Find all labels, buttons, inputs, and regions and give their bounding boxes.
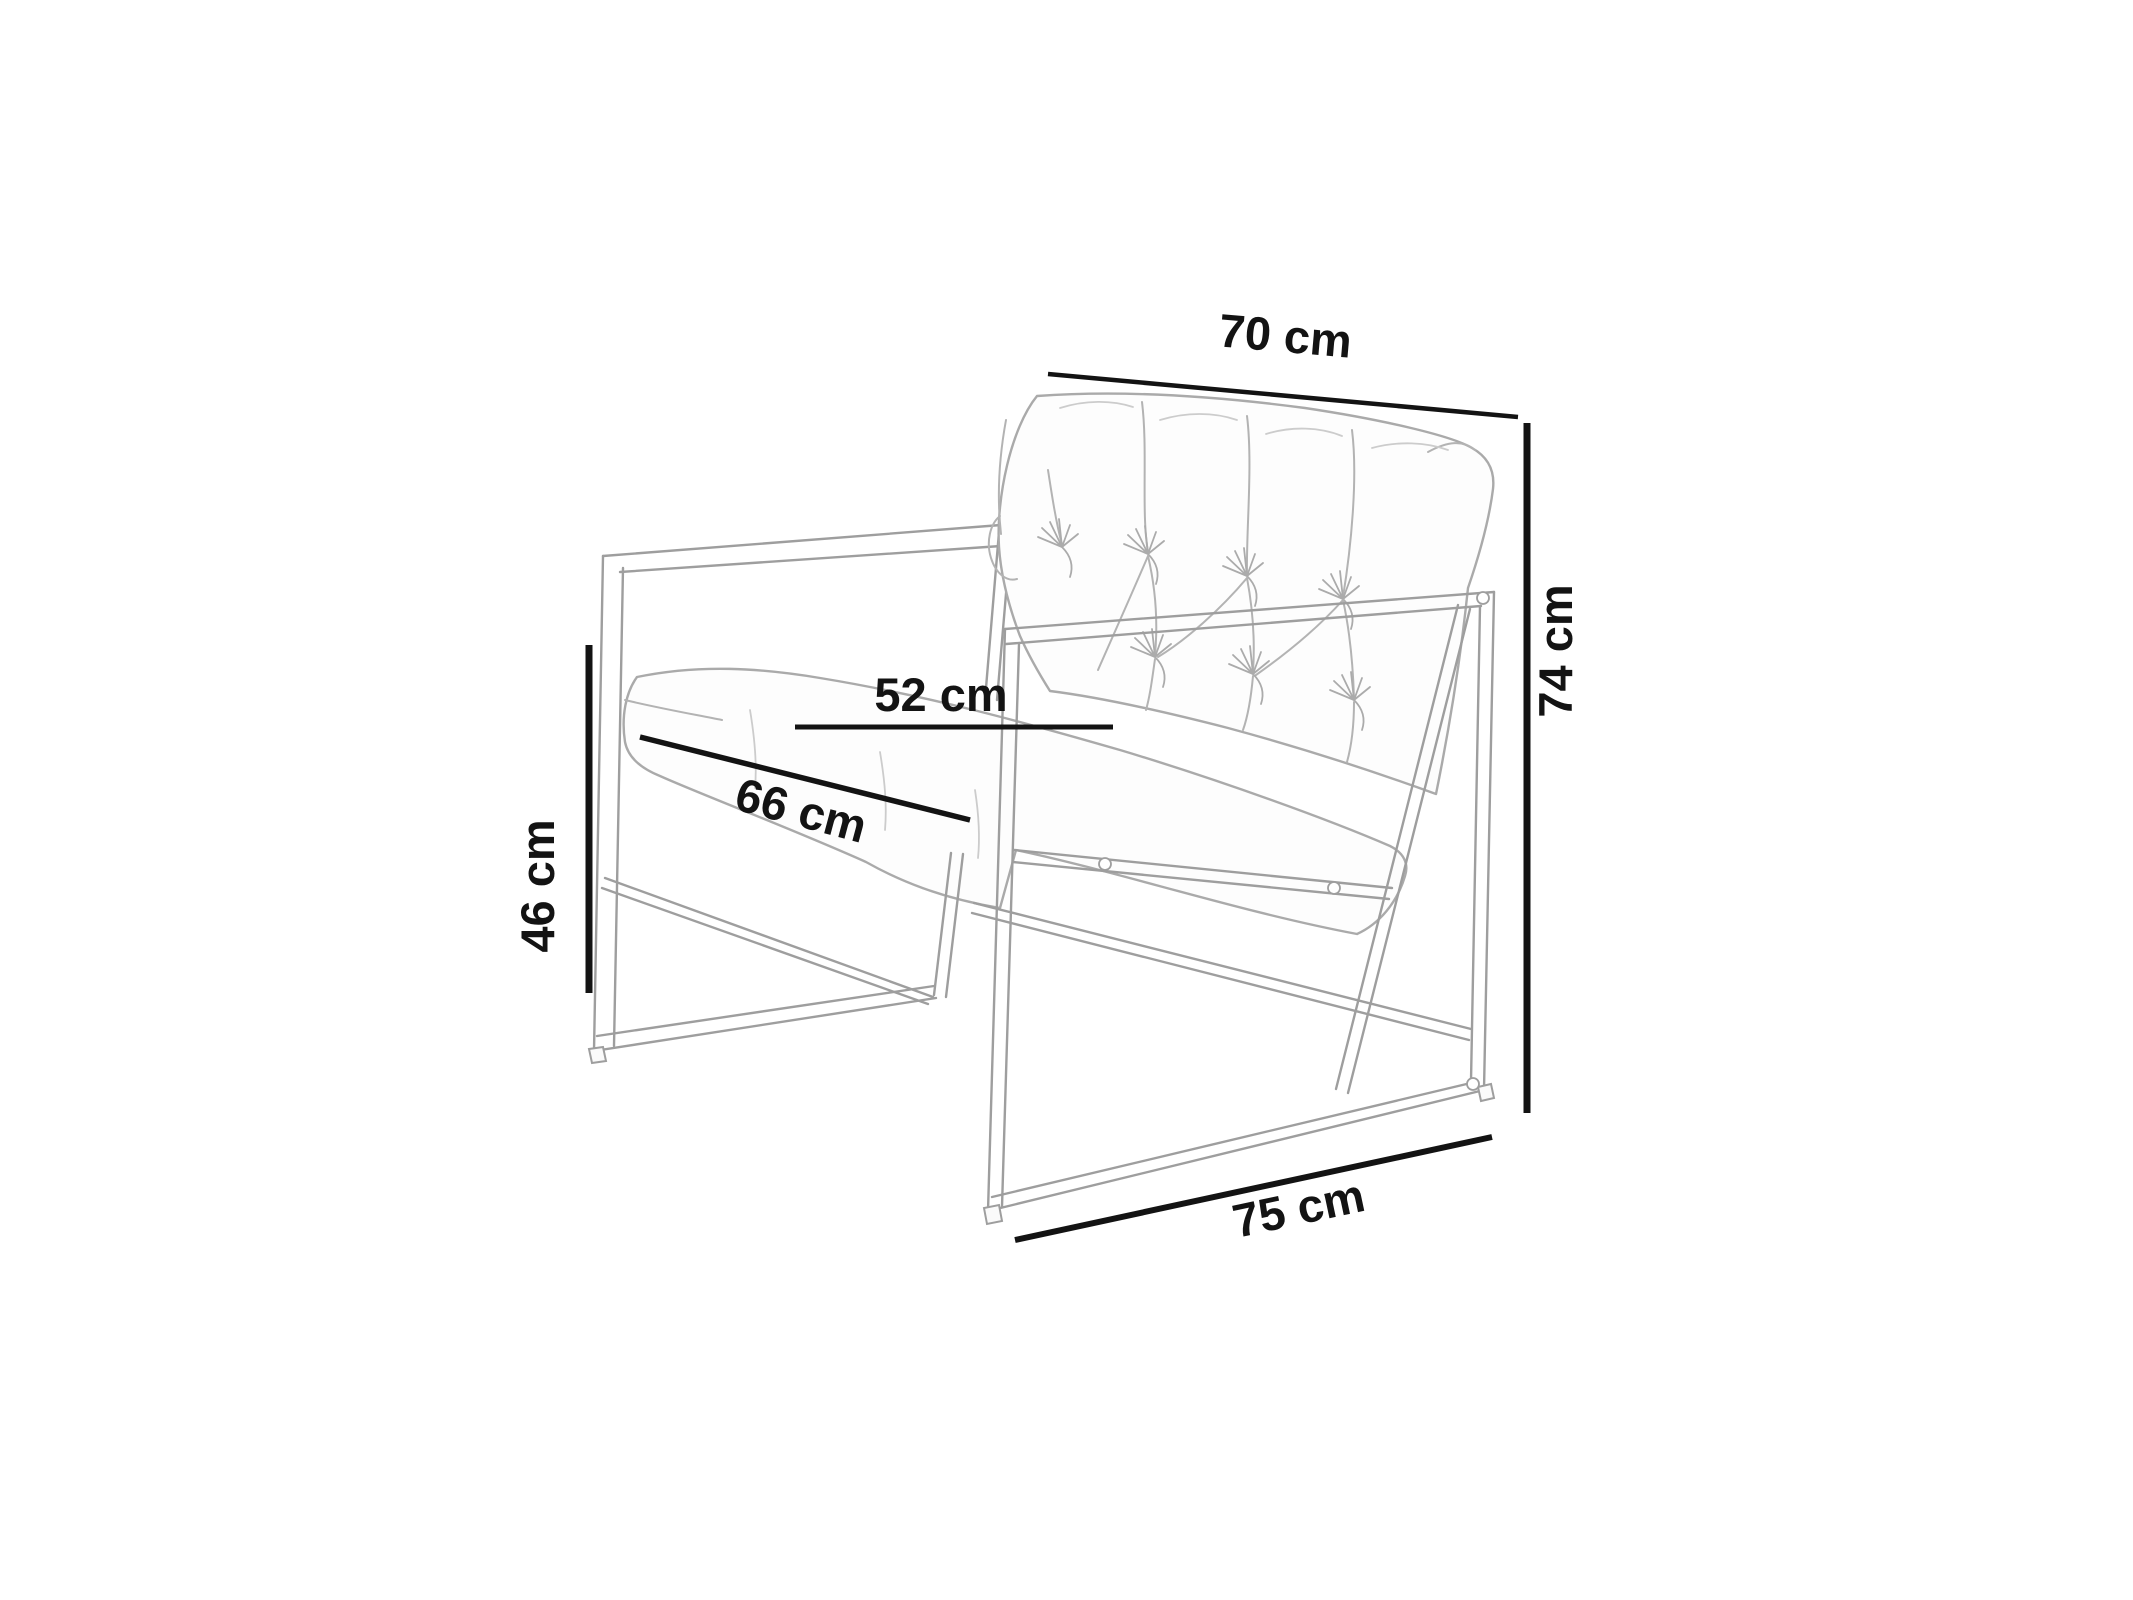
dim-label-70cm: 70 cm xyxy=(1217,303,1354,367)
dim-label-74cm: 74 cm xyxy=(1529,584,1582,717)
chair-sketch xyxy=(589,394,1494,1224)
screw xyxy=(1467,1078,1479,1090)
screw xyxy=(1328,882,1340,894)
screw xyxy=(1099,858,1111,870)
dim-label-75cm: 75 cm xyxy=(1228,1168,1369,1248)
right-rear-foot xyxy=(1478,1084,1494,1101)
left-diagonal-stretcher xyxy=(605,878,933,997)
screw xyxy=(1477,592,1489,604)
back-cushion-outline xyxy=(999,394,1494,794)
side-stretcher xyxy=(974,903,1471,1029)
dim-label-52cm: 52 cm xyxy=(874,668,1007,721)
dimension-overall-height: 74 cm xyxy=(1527,423,1582,1113)
left-bottom-rail xyxy=(594,998,936,1051)
left-front-post xyxy=(594,556,603,1051)
diagram-page: 70 cm 74 cm 46 cm 52 cm 66 cm 75 cm xyxy=(0,0,2133,1600)
right-front-foot xyxy=(984,1205,1002,1224)
dimension-seat-height: 46 cm xyxy=(511,645,589,993)
dim-label-46cm: 46 cm xyxy=(511,819,564,952)
dimension-base-depth: 75 cm xyxy=(1015,1137,1492,1248)
left-foot xyxy=(589,1047,606,1063)
armchair-dimension-diagram: 70 cm 74 cm 46 cm 52 cm 66 cm 75 cm xyxy=(0,0,2133,1600)
right-rear-post xyxy=(1484,592,1494,1090)
